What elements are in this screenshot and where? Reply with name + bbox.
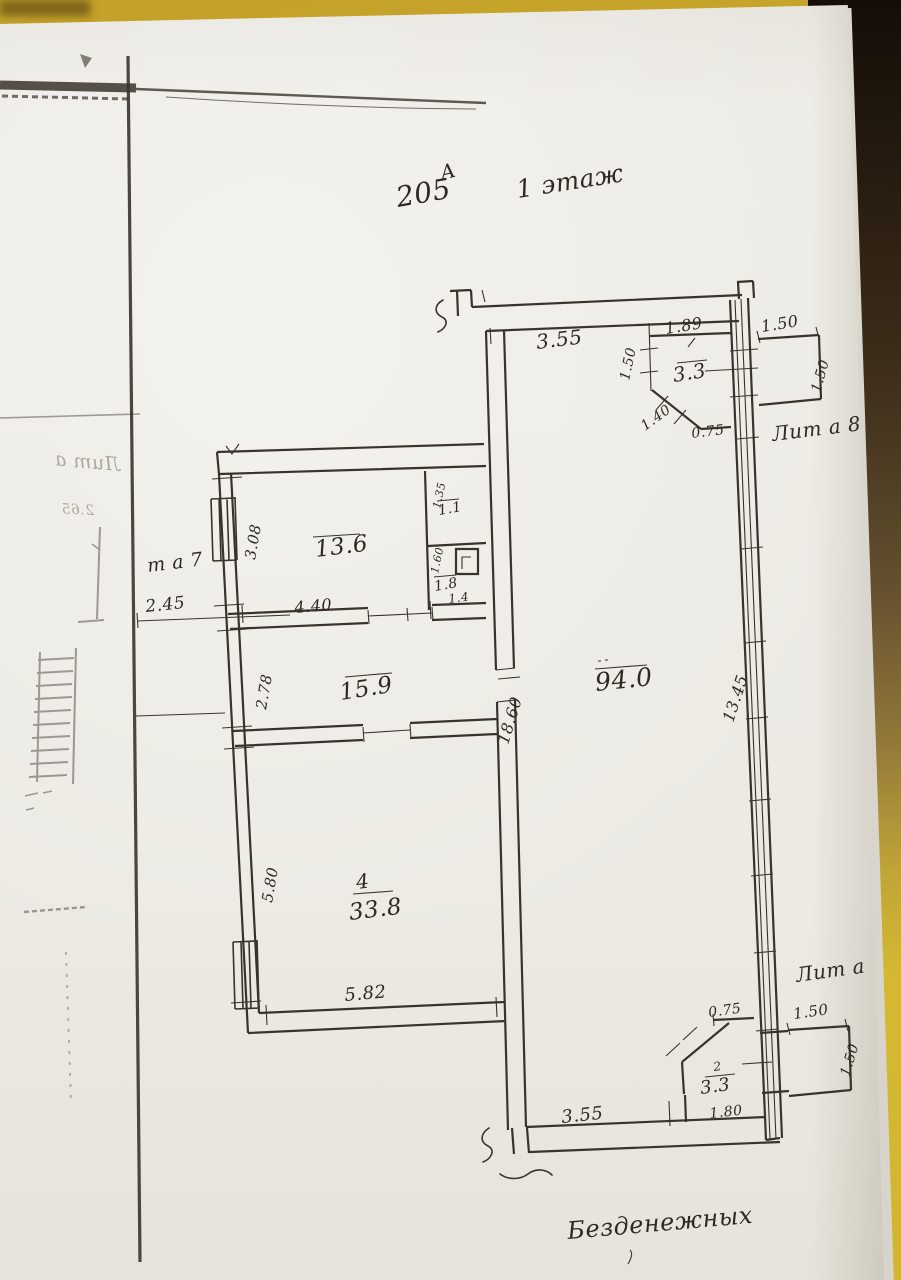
scanned-floor-plan-photo: Лит а 2.65 А 205 1 этаж 13.6 15.9 4 33.8… (0, 0, 901, 1280)
top-edge-smudge (0, 85, 136, 88)
dim-hall-bottom-width: 3.55 (560, 1103, 604, 1128)
dim-room136-height: 3.08 (241, 523, 265, 561)
room-3-3-bottom-number: 2 (711, 1059, 722, 1074)
title-floor: 1 этаж (514, 158, 625, 204)
label-lit-a8: Лит а 8 (770, 411, 863, 446)
dim-room338-height: 5.80 (258, 866, 282, 904)
room-13-6-area: 13.6 (314, 531, 370, 563)
bleed-dash-column (66, 952, 71, 1102)
dim-porch-top-height: 1.50 (808, 358, 833, 394)
room-94-0-area: 94.0 (594, 662, 654, 697)
dim-room159-height: 2.78 (252, 673, 276, 712)
dim-room136-width: 4.40 (293, 595, 333, 617)
title-number: 205 (393, 172, 454, 214)
dim-yard-gap: 2.45 (143, 593, 186, 617)
street-name: Безденежных (565, 1201, 754, 1245)
room-33-8-area: 33.8 (348, 894, 404, 926)
dim-closet-bottom-height: 1.60 (428, 546, 446, 575)
label-lit-a7: т а 7 (146, 548, 205, 577)
fold-top-blob (80, 54, 92, 68)
window-symbols (211, 497, 259, 1009)
bleed-dim-mirrored: 2.65 (61, 501, 96, 519)
bleed-stair-symbol (29, 527, 104, 784)
dim-annex-top-diag: 1.40 (638, 402, 674, 434)
dim-room338-width: 5.82 (344, 981, 388, 1006)
dim-porch-top-width: 1.50 (760, 311, 800, 336)
dim-hall-top-width: 3.55 (535, 324, 584, 353)
floor-plan-drawing: Лит а 2.65 А 205 1 этаж 13.6 15.9 4 33.8… (0, 0, 901, 1280)
top-edge-smudge-dashes (2, 96, 130, 99)
main-wall-lines (217, 281, 851, 1154)
dim-annex-top-cut: 0.75 (691, 422, 726, 442)
dim-porch-bottom-width: 1.50 (792, 1000, 830, 1023)
room-3-3-top-area: 3.3 (671, 358, 708, 387)
top-edge-line (136, 89, 486, 103)
dim-annex-top-height: 1.50 (617, 346, 640, 382)
top-edge-faint-arc (166, 97, 476, 109)
room-33-8-number: 4 (354, 869, 371, 895)
bleed-lit-a-mirrored: Лит а (54, 448, 123, 476)
dim-porch-bottom-height: 1.50 (838, 1042, 863, 1078)
bleed-through-marks: Лит а 2.65 (0, 414, 140, 1102)
dim-closet-width: 1.4 (448, 590, 470, 606)
label-lit-a: Лит а (793, 954, 866, 988)
bleed-dash-row (24, 907, 86, 912)
building-walls (136, 281, 851, 1264)
left-fold-line (128, 56, 140, 1262)
room-3-3-bottom-area: 3.3 (699, 1074, 732, 1099)
